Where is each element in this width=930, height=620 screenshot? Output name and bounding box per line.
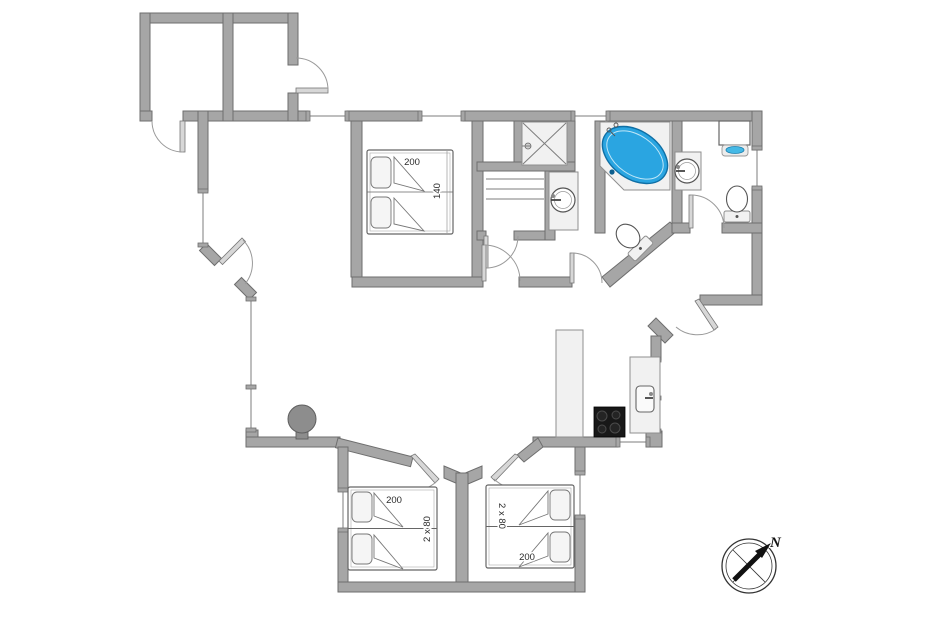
window (198, 189, 208, 247)
bed-length-label: 200 (519, 552, 535, 563)
sauna-door (484, 236, 518, 268)
floor-plan-drawing: 200 140 200 2 x 80 (0, 0, 930, 620)
wall-segment (752, 188, 762, 305)
wall-segment (533, 437, 618, 447)
door-swing-arc (572, 253, 602, 283)
wall-segment (246, 437, 340, 447)
twin-beds-right: 2 x 80 200 (486, 485, 574, 568)
heater-body (719, 121, 750, 145)
annex-south-door (152, 121, 185, 152)
wall-segment (351, 121, 362, 277)
window (575, 471, 585, 519)
window (571, 111, 610, 121)
wall-segment (456, 473, 468, 582)
wood-stove (288, 405, 316, 439)
door-swing-arc (676, 327, 716, 335)
wall-segment (514, 121, 522, 163)
wall-segment (347, 111, 420, 121)
twin-beds-left: 200 2 x 80 (348, 487, 437, 570)
wall-segment (752, 111, 762, 150)
wall-segment (519, 277, 572, 287)
door-swing-arc (243, 240, 252, 284)
compass-north-label: N (769, 535, 782, 551)
wall-segment (567, 121, 575, 163)
pillow (550, 490, 570, 520)
wall-segment (140, 13, 150, 121)
door-leaf (180, 121, 185, 152)
wall-segment (575, 517, 585, 592)
door-leaf (219, 238, 246, 265)
door-leaf (689, 195, 693, 228)
wall-segment (472, 121, 483, 283)
window (616, 437, 650, 447)
wall-segment (352, 277, 483, 287)
wall-segment (700, 295, 762, 305)
heater-lens (726, 147, 744, 154)
wall-segment (235, 278, 257, 300)
washbasin-hall (549, 172, 578, 230)
wall-segment (198, 111, 208, 191)
cooktop-burner (612, 411, 620, 419)
double-bed: 200 140 (367, 150, 453, 234)
pillow (352, 492, 372, 522)
window (306, 111, 349, 121)
pillow (352, 534, 372, 564)
toilet-bowl (727, 186, 748, 212)
cooktop (594, 407, 625, 437)
jacuzzi-drain (609, 169, 614, 174)
pillow (371, 197, 391, 228)
sauna-benches (486, 179, 544, 199)
wall-segment (463, 111, 573, 121)
bed-size-label: 2 x 80 (496, 503, 507, 529)
cooktop-burner (598, 425, 606, 433)
wall-segment (223, 13, 233, 121)
bathroom-door (570, 253, 602, 283)
annex-outbuilding (140, 13, 328, 152)
window (246, 297, 256, 432)
kitchen-counter (556, 330, 583, 437)
pillow (550, 532, 570, 562)
wall-segment (140, 13, 298, 23)
wall-segment (288, 93, 298, 121)
wall-segment (722, 223, 762, 233)
washbasin-wc (675, 152, 701, 190)
compass-rose: N (722, 535, 782, 593)
cooktop-burner (610, 423, 620, 433)
bedroom-right-door (491, 454, 523, 489)
door-leaf (411, 454, 439, 483)
wall-segment (672, 223, 690, 233)
bed-length-label: 200 (404, 157, 420, 168)
wall-segment (140, 111, 152, 121)
wall-segment (514, 231, 545, 240)
pillow (371, 157, 391, 188)
wall-segment (608, 111, 762, 121)
door-leaf (491, 454, 519, 481)
shower (522, 122, 567, 165)
window (418, 111, 465, 121)
floor-plan-canvas: 200 140 200 2 x 80 (0, 0, 930, 620)
wall-segment (517, 438, 543, 462)
door-swing-arc (486, 236, 518, 268)
toilet-flush-dot (736, 215, 739, 218)
wall-segment (575, 447, 585, 473)
kitchen-sink (636, 386, 654, 412)
basin-tap-dot (676, 165, 680, 169)
kitchen (556, 330, 660, 437)
door-swing-arc (691, 195, 724, 228)
window (752, 146, 762, 190)
wall-segment (288, 13, 298, 65)
wall-segment (338, 447, 348, 490)
door-leaf (482, 245, 486, 281)
annex-east-door (296, 58, 328, 93)
door-leaf (296, 88, 328, 93)
door-swing-arc (152, 121, 183, 152)
wall-segment (338, 582, 585, 592)
window (338, 488, 348, 532)
cooktop-burner (597, 411, 607, 421)
stove-body (288, 405, 316, 433)
bed-width-label: 140 (432, 183, 443, 199)
bed-length-label: 200 (386, 495, 402, 506)
door-leaf (570, 253, 574, 283)
entrance-door (219, 238, 252, 284)
bed-size-label: 2 x 80 (422, 516, 433, 542)
wc-door (689, 195, 724, 228)
door-swing-arc (296, 58, 328, 90)
basin-tap-dot (551, 194, 555, 198)
toilet-wc (724, 186, 750, 222)
wall-segment (651, 336, 661, 360)
sink-tap-dot (649, 392, 653, 396)
water-heater (719, 121, 750, 156)
